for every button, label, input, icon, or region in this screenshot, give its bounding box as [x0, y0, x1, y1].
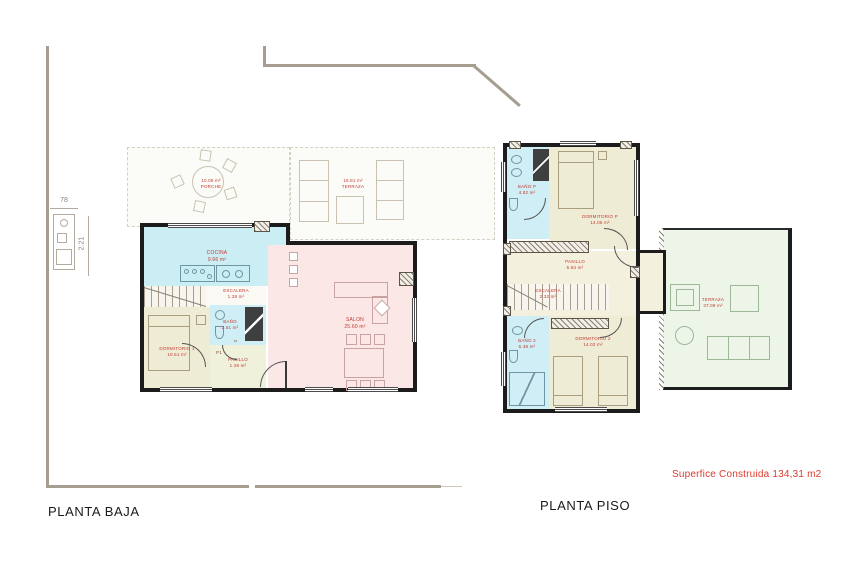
room-label-terraza-piso: TERRAZA 37.09 m² [687, 297, 739, 309]
room-name: SALON [330, 317, 380, 324]
window-piso-left-top [501, 162, 506, 192]
site-boundary-bottom-b [255, 485, 441, 488]
window-piso-top [560, 141, 596, 146]
room-label-escalera-piso: ESCALERA 2.32 m² [520, 288, 576, 300]
site-boundary-bottom-ext [441, 486, 462, 487]
window-piso-left-bottom [501, 352, 506, 386]
room-label-salon: SALON 25.60 m² [330, 317, 380, 331]
wall-break-symbol [620, 141, 632, 149]
terrace-plant [675, 326, 694, 345]
terrace-sofa-piso [707, 336, 770, 360]
sofa-divider [377, 180, 403, 181]
bed-dormitorio2 [598, 356, 628, 406]
wall-break-symbol [254, 221, 270, 232]
room-area: 25.60 m² [330, 324, 380, 331]
bathtub-bano-2 [509, 372, 545, 406]
wall-break-symbol [509, 141, 521, 149]
wardrobe-pasillo [509, 241, 589, 253]
dining-chair [360, 334, 371, 345]
dimension-height: 2.21 [79, 228, 86, 260]
bed-pillow-line [599, 395, 627, 396]
porch-chair [193, 200, 206, 213]
dining-chair [374, 334, 385, 345]
sink-bowl [222, 270, 230, 278]
room-name: PORCHE [187, 184, 235, 190]
plan-title-piso: PLANTA PISO [540, 498, 630, 513]
room-label-pasillo-piso: PASILLO 5.84 m² [545, 259, 605, 271]
sofa-divider [749, 337, 750, 359]
room-area: 4.82 m² [508, 190, 546, 196]
room-name: TERRAZA [328, 184, 378, 190]
floorplan-sheet: 78 2.21 10.05 m² PORCHE 16.81 m² TERRAZA [0, 0, 850, 567]
door-leaf-entrance [285, 361, 287, 388]
window-cocina-top [168, 223, 252, 228]
sink-bano-p [511, 168, 522, 177]
room-label-bano-baja: BAÑO 2.61 m² [214, 319, 246, 331]
bed-pillow-line [149, 326, 189, 327]
room-area: 14.05 m² [568, 220, 632, 226]
kitchen-sink [216, 265, 250, 282]
piso-passage [636, 250, 666, 314]
hob-burner [184, 269, 189, 274]
room-area: 5.38 m² [508, 344, 546, 350]
shower-bano-p [533, 149, 549, 181]
porch-chair [199, 149, 211, 161]
room-label-porche: 10.05 m² PORCHE [187, 178, 235, 190]
hob-burner [207, 274, 212, 279]
kitchen-hob [180, 265, 215, 282]
room-label-dormitorio-2: DORMITORIO 2 14.02 m² [560, 336, 626, 348]
site-boundary-diagonal [472, 64, 521, 107]
terrace-table [336, 196, 364, 224]
site-boundary-left [46, 46, 49, 488]
hob-burner [192, 269, 197, 274]
surface-note: Superfice Construida 134,31 m2 [672, 469, 821, 480]
dining-chair [346, 334, 357, 345]
window-salon-bottom-1 [305, 387, 333, 392]
room-area: 2.61 m² [214, 325, 246, 331]
door-label-2: 2 [232, 337, 238, 345]
bed-dormitorio-p [558, 151, 594, 209]
room-label-dormitorio-p: DORMITORIO P 14.05 m² [568, 214, 632, 226]
porch-chair [222, 158, 237, 173]
detail-box-large [56, 249, 72, 265]
shower-bano-baja [245, 307, 263, 341]
room-label-terraza-baja: 16.81 m² TERRAZA [328, 178, 378, 190]
dining-table [344, 348, 384, 378]
salon-shelf [289, 252, 298, 261]
window-salon-right [412, 298, 417, 342]
terrace-sofa-left [299, 160, 329, 222]
site-boundary-bottom-a [46, 485, 249, 488]
sofa-divider [728, 337, 729, 359]
sofa-divider [377, 200, 403, 201]
bed-pillow-line [554, 395, 582, 396]
room-area: 9.66 m² [192, 257, 242, 264]
bed-dormitorio2 [553, 356, 583, 406]
wall-detail-sketch [53, 214, 75, 270]
hob-burner [200, 269, 205, 274]
site-boundary-top [263, 64, 476, 67]
room-area: 37.09 m² [687, 303, 739, 309]
sink-bowl [235, 270, 243, 278]
bed-pillow-line [559, 162, 593, 163]
room-area: 14.02 m² [560, 342, 626, 348]
toilet-bano-p [509, 198, 518, 211]
room-area: 2.32 m² [520, 294, 576, 300]
toilet-bano-2 [509, 350, 518, 363]
room-label-bano-2: BAÑO 2 5.38 m² [508, 338, 546, 350]
window-dormitorio-p-right [634, 160, 639, 216]
room-area: 5.84 m² [545, 265, 605, 271]
window-salon-bottom-2 [348, 387, 398, 392]
porch-chair [170, 174, 185, 189]
salon-shelf [289, 265, 298, 274]
terraza-baja-zone [290, 147, 495, 240]
detail-box-small [57, 233, 67, 243]
window-dormitorio1-bottom [160, 387, 212, 392]
wall-break-symbol [503, 243, 511, 255]
sink-bano-p [511, 155, 522, 164]
dimension-height-line [88, 216, 89, 276]
room-name: COCINA [192, 250, 242, 257]
sink-bano-2 [512, 326, 523, 335]
room-label-bano-p: BAÑO P 4.82 m² [508, 184, 546, 196]
sofa-divider [300, 201, 328, 202]
room-area: 1.28 m² [215, 363, 261, 369]
room-area: 1.28 m² [206, 294, 266, 300]
room-label-pasillo-baja: PASILLO 1.28 m² [215, 357, 261, 369]
dimension-width-line [50, 208, 78, 209]
wall-break-symbol [399, 272, 414, 286]
window-piso-bottom [555, 407, 607, 412]
detail-circle [60, 219, 68, 227]
nightstand [196, 315, 206, 325]
plan-title-baja: PLANTA BAJA [48, 504, 140, 519]
salon-shelf [289, 278, 298, 287]
terrace-sofa-right [376, 160, 404, 220]
room-label-cocina: COCINA 9.66 m² [192, 250, 242, 264]
sofa-divider [300, 180, 328, 181]
dimension-width: 78 [52, 197, 76, 204]
nightstand [598, 151, 607, 160]
wall-break-symbol [503, 306, 511, 316]
room-label-escalera-baja: ESCALERA 1.28 m² [206, 288, 266, 300]
